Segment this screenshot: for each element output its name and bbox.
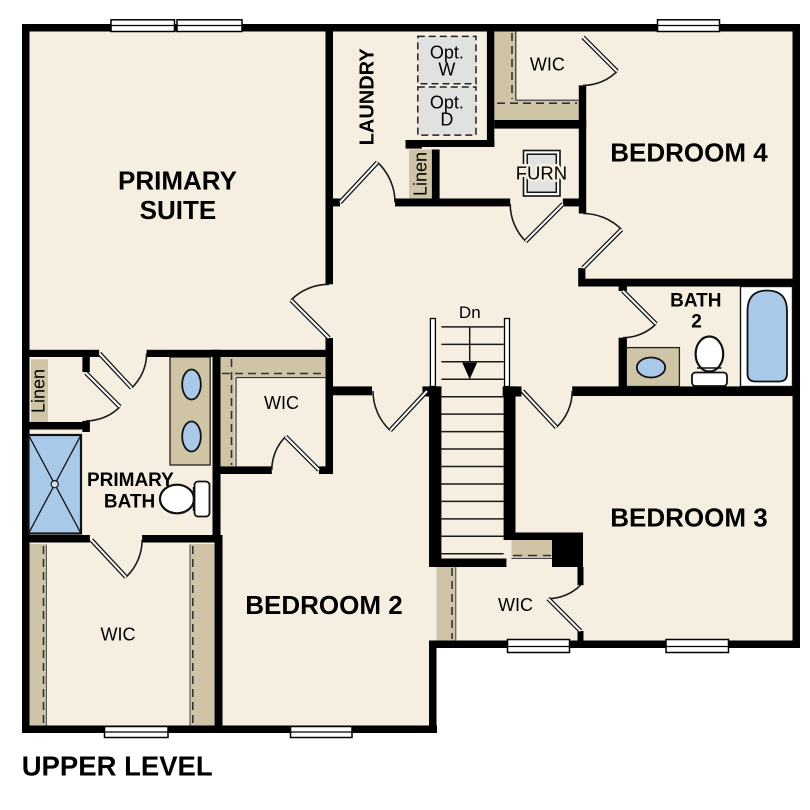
svg-text:UPPER LEVEL: UPPER LEVEL (22, 751, 213, 782)
svg-text:BEDROOM 2: BEDROOM 2 (245, 590, 402, 620)
svg-text:WIC: WIC (264, 393, 299, 413)
svg-text:BATH: BATH (670, 290, 721, 311)
svg-text:SUITE: SUITE (140, 195, 217, 225)
svg-text:D: D (440, 109, 453, 129)
svg-text:Dn: Dn (459, 303, 481, 322)
svg-text:Linen: Linen (29, 369, 49, 413)
svg-text:WIC: WIC (101, 625, 136, 645)
svg-text:W: W (438, 59, 455, 79)
svg-text:PRIMARY: PRIMARY (118, 165, 237, 195)
svg-text:BATH: BATH (104, 491, 155, 512)
svg-text:LAUNDRY: LAUNDRY (357, 48, 379, 146)
svg-text:PRIMARY: PRIMARY (87, 470, 174, 491)
svg-text:Linen: Linen (411, 152, 431, 196)
svg-text:BEDROOM 4: BEDROOM 4 (610, 138, 768, 168)
svg-text:FURN: FURN (516, 163, 567, 184)
svg-text:BEDROOM 3: BEDROOM 3 (610, 502, 767, 532)
svg-text:WIC: WIC (530, 55, 565, 75)
svg-text:2: 2 (691, 312, 702, 333)
svg-text:WIC: WIC (498, 595, 533, 615)
